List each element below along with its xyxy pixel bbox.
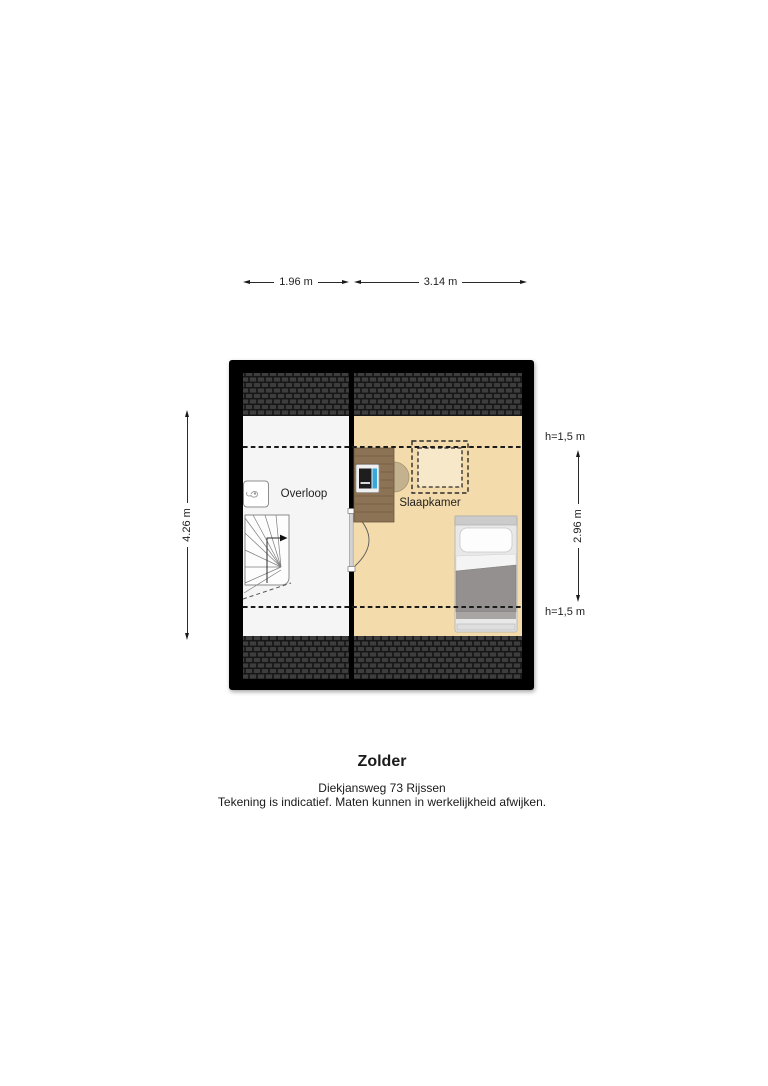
arrowhead-right-icon xyxy=(342,280,349,284)
arrowhead-right-icon xyxy=(520,280,527,284)
knee-height-label-bottom: h=1,5 m xyxy=(545,606,585,618)
arrowhead-up-icon xyxy=(185,410,189,417)
disclaimer-line: Tekening is indicatief. Maten kunnen in … xyxy=(0,795,764,809)
dimension-top-left: 1.96 m xyxy=(243,275,349,289)
room-label-slaapkamer: Slaapkamer xyxy=(399,497,461,509)
address-line: Diekjansweg 73 Rijssen xyxy=(0,781,764,795)
skylight-icon xyxy=(412,441,468,493)
floorplan-drawing: Overloop Slaapkamer xyxy=(229,360,534,690)
ventilation-unit-icon xyxy=(244,481,269,507)
knee-height-label-top: h=1,5 m xyxy=(545,431,585,443)
computer-icon xyxy=(356,465,379,493)
arrowhead-down-icon xyxy=(576,595,580,602)
arrowhead-up-icon xyxy=(576,450,580,457)
dimension-label: 4.26 m xyxy=(180,503,194,547)
dimension-left: 4.26 m xyxy=(180,410,194,640)
dimension-right: 2.96 m xyxy=(571,450,585,602)
arrowhead-down-icon xyxy=(185,633,189,640)
dimension-label: 3.14 m xyxy=(419,275,463,289)
arrowhead-left-icon xyxy=(354,280,361,284)
dimension-label: 2.96 m xyxy=(571,504,585,548)
arrowhead-left-icon xyxy=(243,280,250,284)
floor-title: Zolder xyxy=(0,753,764,771)
dimension-label: 1.96 m xyxy=(274,275,318,289)
dimension-top-right: 3.14 m xyxy=(354,275,527,289)
room-label-overloop: Overloop xyxy=(281,488,328,500)
bed-icon xyxy=(455,516,517,632)
floorplan-page: 1.96 m 3.14 m 4.26 m 2.96 m h=1,5 m h=1,… xyxy=(0,0,768,1086)
